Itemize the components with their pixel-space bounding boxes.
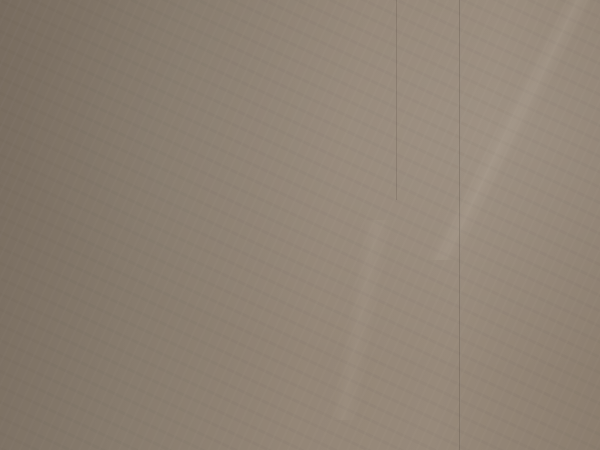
- tile-seam: [459, 0, 461, 450]
- left-wall: [0, 0, 38, 450]
- tile-seam: [396, 0, 397, 200]
- showroom-photo: 84A: [0, 0, 600, 450]
- stone-vein: [250, 220, 470, 420]
